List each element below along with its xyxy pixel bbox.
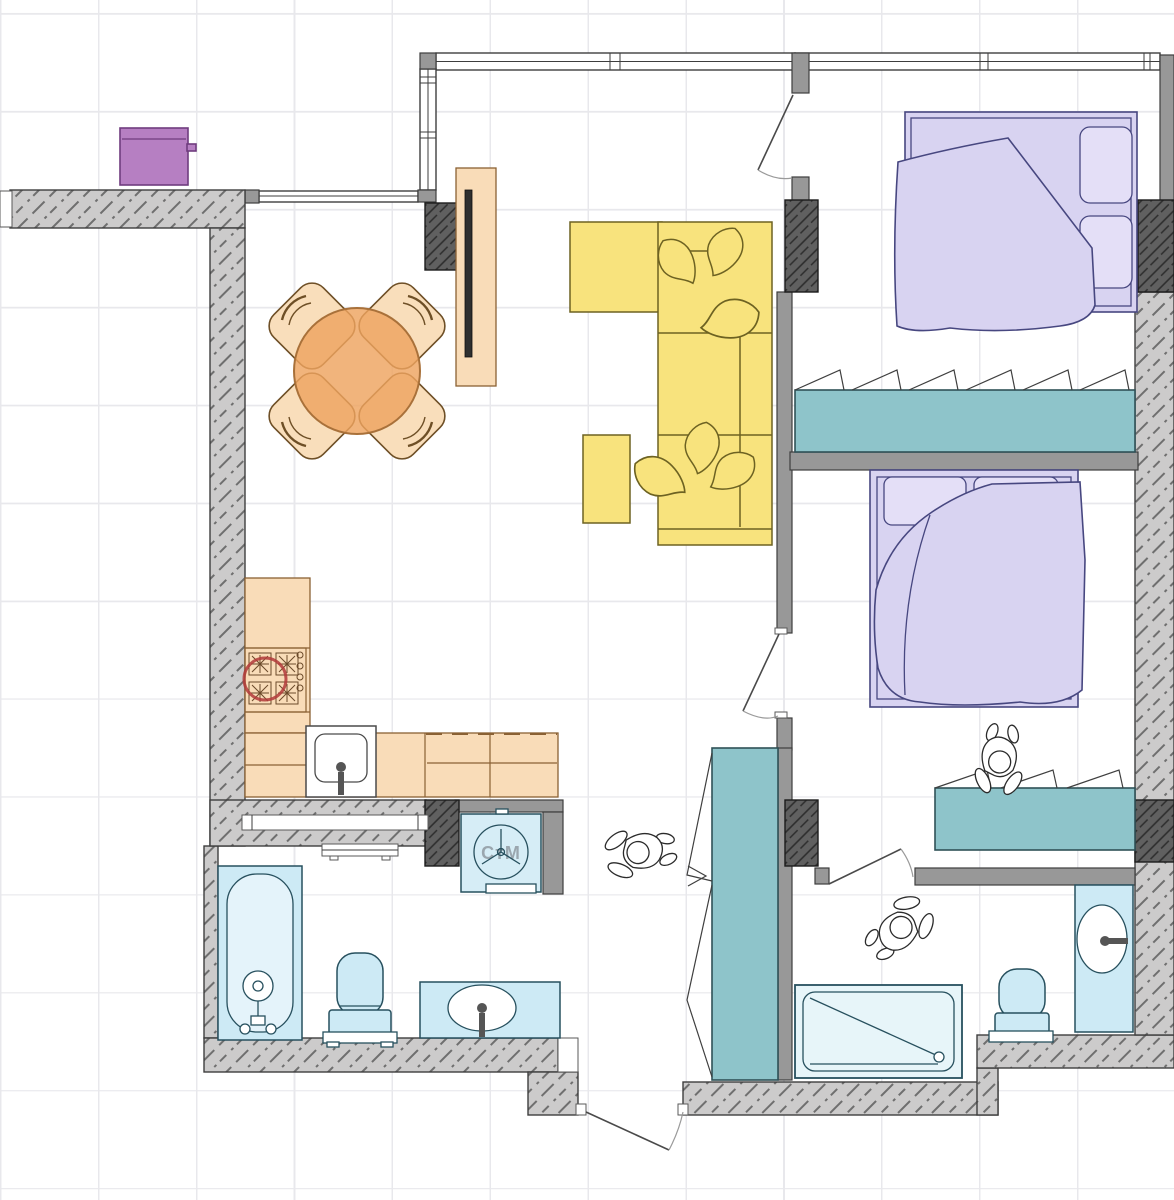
towel-radiator [322, 844, 398, 860]
tv[interactable] [465, 190, 472, 357]
toilet-bathroom1[interactable] [323, 953, 397, 1047]
bed-bedroom1[interactable] [895, 112, 1137, 331]
floor-plan-canvas: СтМ [0, 0, 1174, 1200]
bed-bedroom2[interactable] [870, 470, 1085, 707]
pillar [425, 800, 459, 866]
dining-table[interactable] [294, 308, 420, 434]
kitchen-sink[interactable] [306, 726, 376, 797]
glazing-corner-post [420, 53, 436, 69]
bathtub[interactable] [218, 866, 302, 1040]
pillar [1138, 200, 1174, 292]
kitchen-counter[interactable] [244, 578, 558, 797]
person-figure-hallway[interactable] [600, 821, 680, 884]
tv-stand[interactable] [456, 168, 496, 386]
pillar [1135, 800, 1174, 862]
east-wall-thin [1160, 55, 1174, 203]
vanity-sink-bathroom2[interactable] [1075, 885, 1133, 1032]
toilet-bathroom2[interactable] [989, 969, 1053, 1042]
wardrobe-bedroom1[interactable] [795, 370, 1135, 452]
pillar [785, 800, 818, 866]
pouf[interactable] [583, 435, 630, 523]
door-hall-to-bedroom2[interactable] [743, 634, 779, 718]
pillar [785, 200, 818, 292]
bifold-closet[interactable] [687, 748, 778, 1080]
balcony-storage-box[interactable] [120, 128, 196, 185]
person-figure-bedroom2[interactable] [970, 721, 1030, 799]
pillow [1080, 127, 1132, 203]
person-figure-bathroom2[interactable] [854, 885, 945, 973]
floor-plan-drawing: СтМ [0, 0, 1174, 1200]
dining-set[interactable] [263, 277, 452, 466]
pocket-door-bathroom1[interactable] [242, 815, 428, 830]
entrance-door[interactable] [586, 1112, 683, 1150]
dresser-bedroom2[interactable] [935, 770, 1135, 850]
washing-machine[interactable]: СтМ [461, 809, 541, 893]
door-bedroom2-to-bathroom2[interactable] [829, 849, 913, 884]
shower-tray[interactable] [795, 985, 962, 1078]
vanity-sink-bathroom1[interactable] [420, 982, 560, 1038]
door-living-to-bedroom1[interactable] [758, 95, 793, 179]
pillar [425, 203, 457, 270]
